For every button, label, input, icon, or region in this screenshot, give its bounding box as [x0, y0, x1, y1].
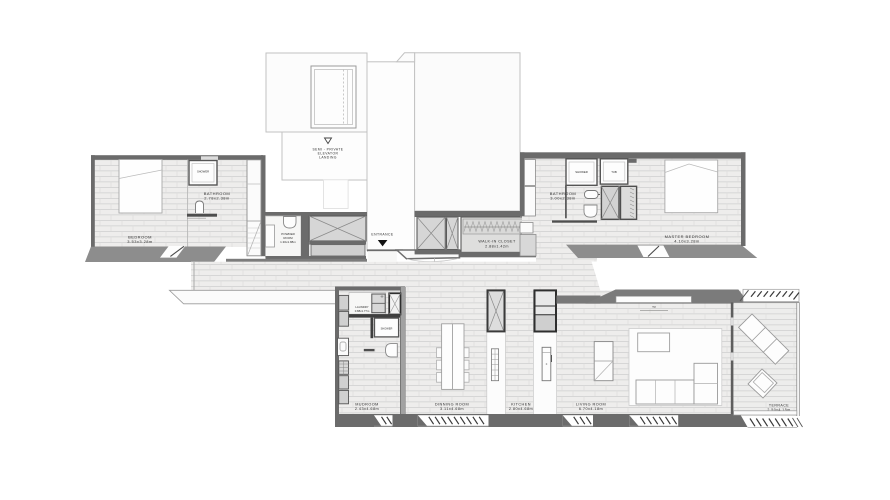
svg-text:LANDING: LANDING: [319, 155, 337, 159]
svg-text:SHOWER: SHOWER: [197, 170, 209, 174]
svg-text:2.78x2.38m: 2.78x2.38m: [204, 196, 230, 201]
svg-text:4.10x3.28m: 4.10x3.28m: [674, 239, 700, 244]
svg-text:1.30x1.88m: 1.30x1.88m: [280, 240, 296, 244]
svg-text:SHOWER: SHOWER: [575, 170, 588, 174]
svg-text:ENTRANCE: ENTRANCE: [371, 233, 394, 237]
svg-text:LIVING ROOM: LIVING ROOM: [576, 402, 606, 406]
svg-text:KITCHEN: KITCHEN: [511, 402, 531, 406]
svg-text:SHOWER: SHOWER: [381, 327, 393, 331]
svg-text:TV: TV: [652, 305, 656, 309]
svg-text:DINNING ROOM: DINNING ROOM: [435, 402, 469, 406]
svg-text:MUDROOM: MUDROOM: [355, 402, 379, 406]
svg-text:3.11x4.68m: 3.11x4.68m: [440, 407, 464, 411]
svg-text:TUB: TUB: [611, 170, 617, 174]
svg-text:2.43x4.68m: 2.43x4.68m: [355, 407, 379, 411]
svg-text:2.80x4.68m: 2.80x4.68m: [509, 407, 533, 411]
svg-text:3.53x3.28m: 3.53x3.28m: [127, 239, 153, 244]
svg-text:0.88x1.77m: 0.88x1.77m: [355, 309, 370, 313]
svg-text:WALK-IN CLOSET: WALK-IN CLOSET: [478, 240, 516, 244]
svg-text:3.00x2.38m: 3.00x2.38m: [550, 196, 576, 201]
svg-text:2.88x1.42m: 2.88x1.42m: [485, 245, 509, 249]
svg-text:6.70x4.18m: 6.70x4.18m: [579, 407, 603, 411]
